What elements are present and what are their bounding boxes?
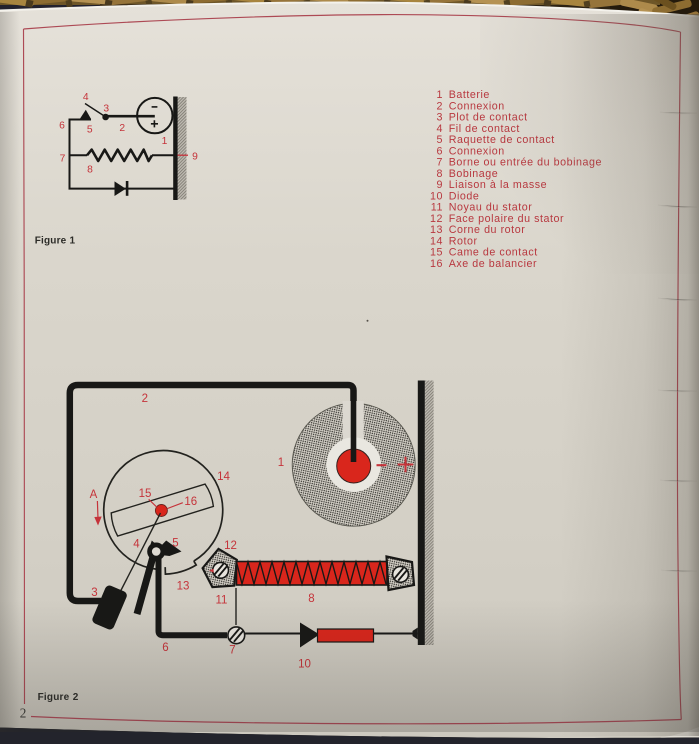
svg-text:4: 4 [437,123,444,135]
svg-text:15: 15 [139,488,152,500]
svg-text:6: 6 [59,121,65,132]
svg-text:9: 9 [192,152,198,163]
svg-text:2: 2 [142,393,148,405]
svg-text:11: 11 [431,202,443,214]
svg-text:16: 16 [430,258,443,270]
svg-text:7: 7 [437,157,444,169]
svg-text:16: 16 [184,496,197,508]
svg-text:12: 12 [224,540,237,552]
svg-text:Diode: Diode [449,190,480,202]
svg-text:1: 1 [70,235,76,246]
svg-text:15: 15 [430,247,443,259]
svg-text:4: 4 [133,539,140,551]
svg-text:12: 12 [430,213,443,225]
svg-text:8: 8 [437,168,444,180]
svg-text:Figure: Figure [35,235,67,246]
svg-text:14: 14 [430,235,443,247]
svg-text:7: 7 [60,153,66,164]
svg-text:1: 1 [162,136,168,147]
svg-text:Rotor: Rotor [449,235,478,247]
svg-text:3: 3 [91,587,97,599]
svg-text:14: 14 [217,471,230,483]
svg-text:5: 5 [172,538,178,550]
svg-text:13: 13 [177,581,190,593]
svg-text:5: 5 [87,125,93,136]
svg-text:2: 2 [437,100,444,112]
svg-text:3: 3 [103,104,109,115]
svg-text:A: A [90,489,98,501]
svg-text:8: 8 [87,164,93,175]
svg-text:13: 13 [430,224,443,236]
svg-text:6: 6 [437,145,444,157]
svg-text:4: 4 [83,92,89,103]
svg-text:2: 2 [119,123,125,134]
svg-text:1: 1 [278,457,284,469]
svg-text:9: 9 [437,179,444,191]
svg-text:10: 10 [430,190,443,202]
svg-text:5: 5 [437,134,444,146]
svg-text:1: 1 [437,89,444,101]
svg-text:3: 3 [437,112,444,124]
